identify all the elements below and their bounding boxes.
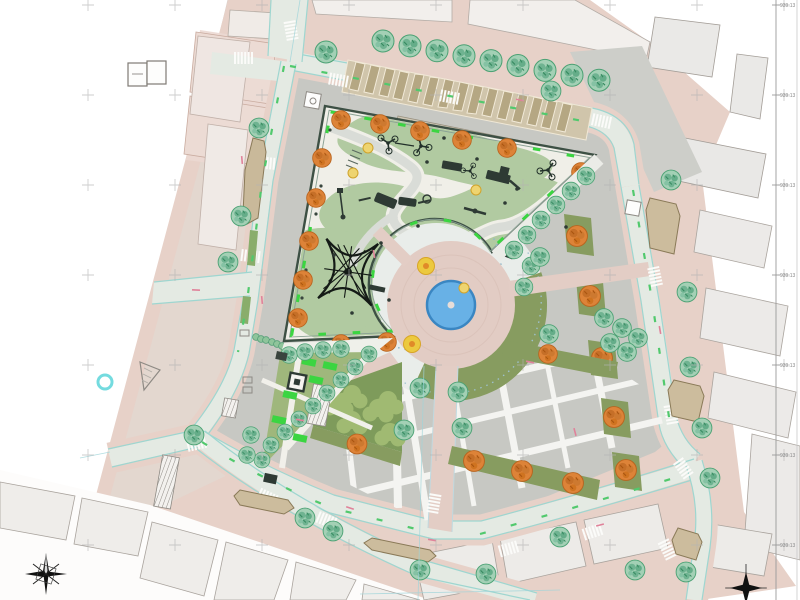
svg-text:939.13: 939.13 <box>780 93 796 99</box>
svg-text:939.13: 939.13 <box>780 453 796 459</box>
svg-text:939.13: 939.13 <box>780 363 796 369</box>
svg-text:939.13: 939.13 <box>780 543 796 549</box>
svg-text:939.13: 939.13 <box>780 273 796 279</box>
svg-text:939.13: 939.13 <box>780 183 796 189</box>
svg-text:939.13: 939.13 <box>780 3 796 9</box>
